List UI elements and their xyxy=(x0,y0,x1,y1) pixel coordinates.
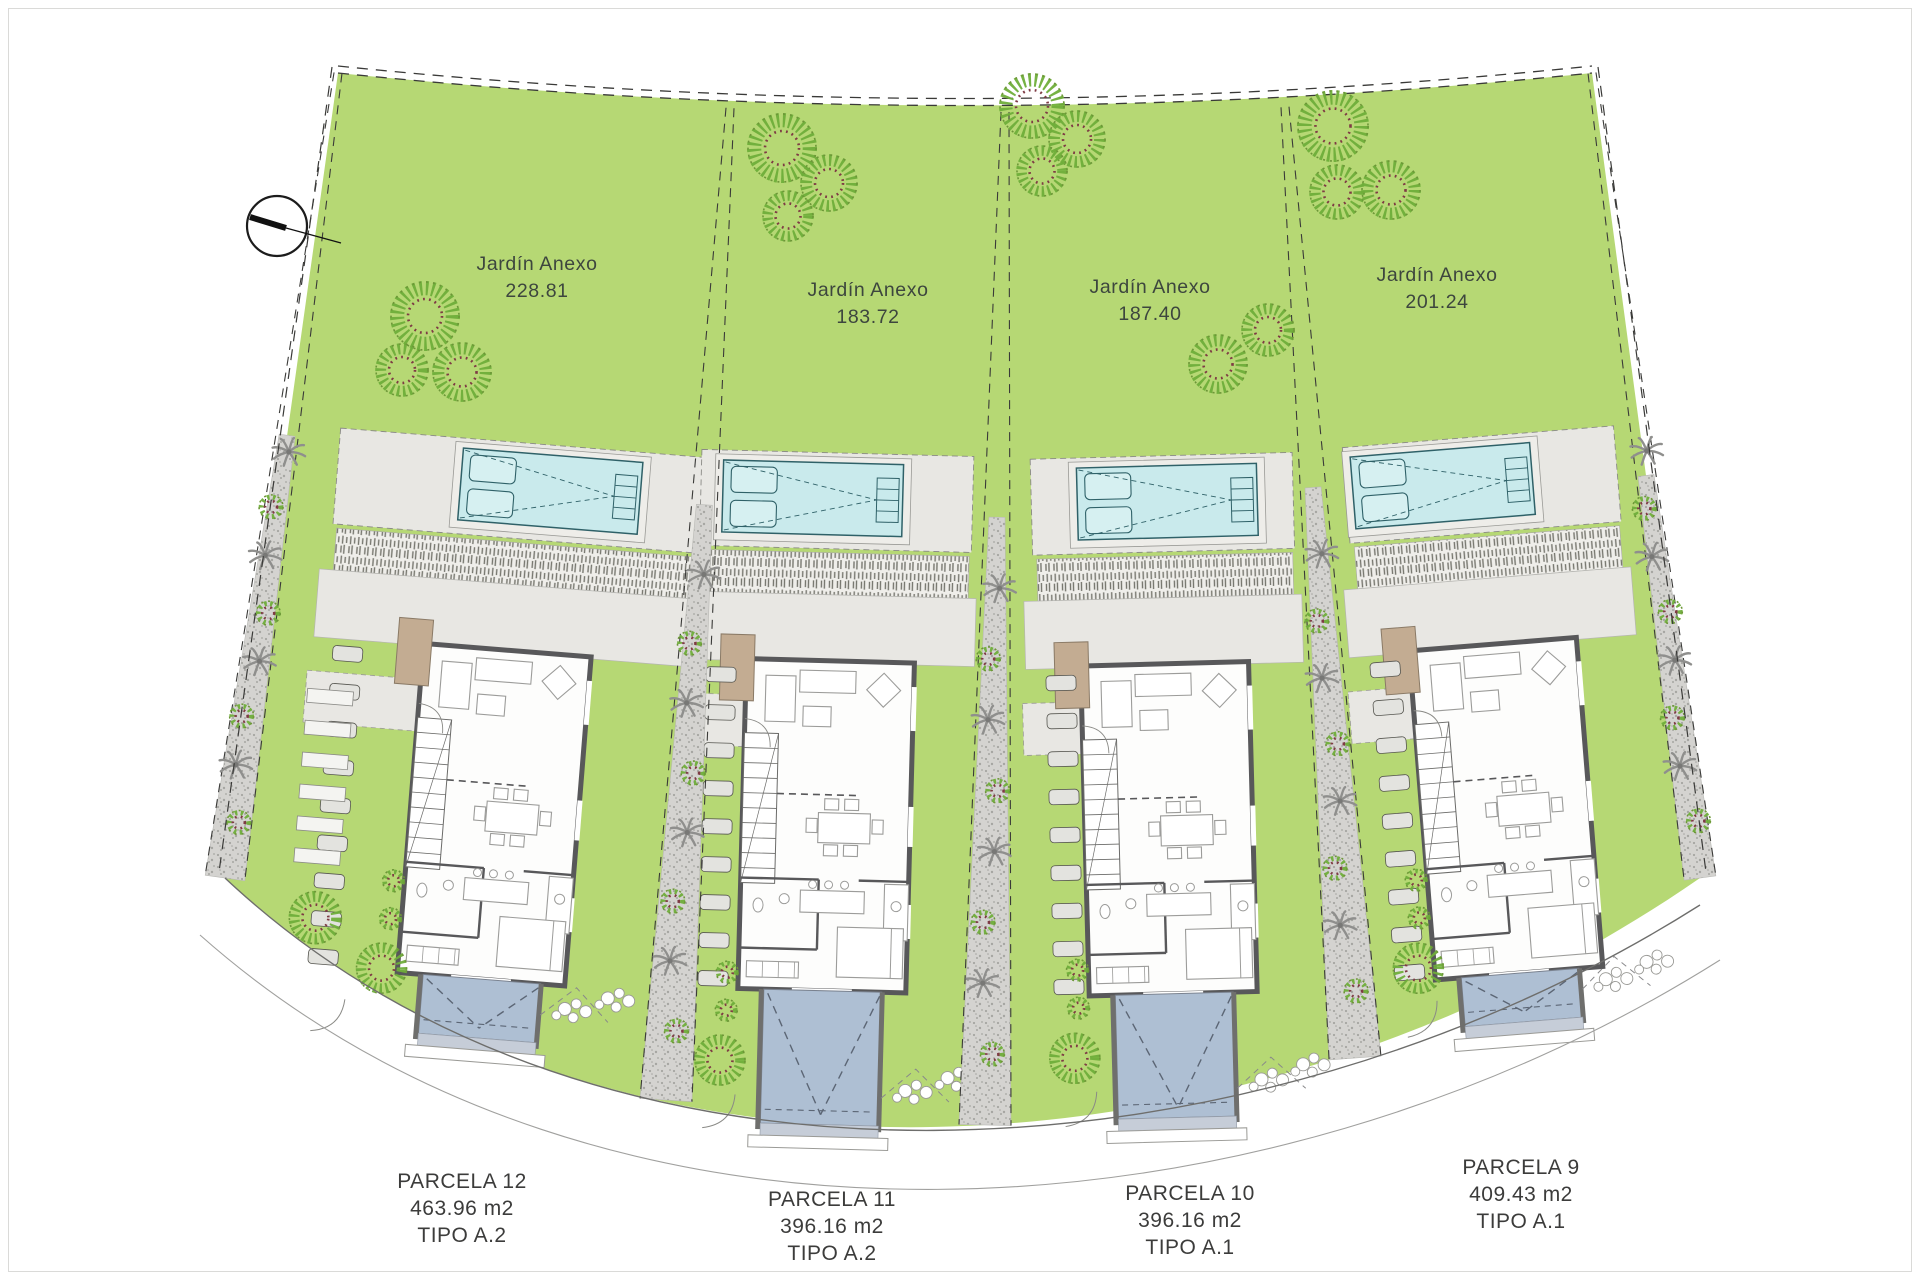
pool-lounger xyxy=(1085,507,1132,534)
stepping-stone xyxy=(700,894,730,910)
stepping-stone xyxy=(1376,736,1407,753)
driveway xyxy=(418,974,540,1042)
parcel-tipo: TIPO A.1 xyxy=(1145,1236,1234,1259)
parcel-label-12: PARCELA 12463.96 m2TIPO A.2 xyxy=(397,1170,527,1247)
pool-lounger xyxy=(731,466,778,493)
parcel-name: PARCELA 9 xyxy=(1462,1156,1579,1179)
garden-label-area: 228.81 xyxy=(505,280,568,302)
driveway xyxy=(760,989,881,1126)
stepping-stone xyxy=(1051,865,1081,881)
stepping-stone xyxy=(699,932,729,948)
pebble-cluster xyxy=(1633,949,1674,976)
parcel-name: PARCELA 11 xyxy=(768,1188,896,1211)
parcel-label-11: PARCELA 11396.16 m2TIPO A.2 xyxy=(768,1188,896,1265)
stepping-stone xyxy=(1047,713,1077,729)
gate-arc xyxy=(310,997,345,1033)
garden-label-area: 183.72 xyxy=(836,306,899,328)
stepping-stone xyxy=(1050,827,1080,843)
pool-lounger xyxy=(730,500,777,527)
parcel-tipo: TIPO A.1 xyxy=(1476,1210,1565,1233)
parcel-area: 396.16 m2 xyxy=(780,1215,884,1238)
parcel-area: 396.16 m2 xyxy=(1138,1209,1242,1232)
garden-label-area: 201.24 xyxy=(1405,291,1468,313)
stepping-stone xyxy=(1046,675,1076,691)
stepping-stone xyxy=(332,645,363,662)
pool-lounger xyxy=(1085,473,1132,500)
stepping-stone xyxy=(1048,751,1078,767)
stepping-stone xyxy=(317,835,348,852)
garden-label-title: Jardín Anexo xyxy=(476,253,597,275)
parcel-tipo: TIPO A.2 xyxy=(787,1242,876,1265)
parcel-tipo: TIPO A.2 xyxy=(417,1224,506,1247)
stepping-stone xyxy=(1373,699,1404,716)
stepping-stone xyxy=(701,856,731,872)
entrance-planter xyxy=(394,617,433,686)
garden-label-title: Jardín Anexo xyxy=(1376,264,1497,286)
stepping-stone xyxy=(705,705,735,721)
parcel-area: 463.96 m2 xyxy=(410,1197,514,1220)
stepping-stone xyxy=(1049,789,1079,805)
garden-label-area: 187.40 xyxy=(1118,303,1181,325)
stepping-stone xyxy=(1053,941,1083,957)
stepping-stone xyxy=(703,781,733,797)
garden-label-title: Jardín Anexo xyxy=(807,279,928,301)
site-plan-page: Jardín Anexo228.81Jardín Anexo183.72Jard… xyxy=(0,0,1920,1280)
pebble-cluster xyxy=(1592,966,1633,993)
garden-label-title: Jardín Anexo xyxy=(1089,276,1210,298)
driveway xyxy=(1461,968,1583,1026)
parcel-label-9: PARCELA 9409.43 m2TIPO A.1 xyxy=(1462,1156,1579,1233)
stepping-stone xyxy=(1391,926,1422,943)
parcel-name: PARCELA 12 xyxy=(397,1170,527,1193)
stepping-stone xyxy=(1052,903,1082,919)
stepping-stone xyxy=(314,872,345,889)
stepping-stone xyxy=(1370,661,1401,678)
timber-deck xyxy=(1037,552,1294,601)
stepping-stone xyxy=(1385,850,1416,867)
parcel-name: PARCELA 10 xyxy=(1125,1182,1255,1205)
stepping-stone xyxy=(1388,888,1419,905)
stepping-stone xyxy=(1382,812,1413,829)
parcel-label-10: PARCELA 10396.16 m2TIPO A.1 xyxy=(1125,1182,1255,1259)
stepping-stone xyxy=(704,743,734,759)
parcel-area: 409.43 m2 xyxy=(1469,1183,1573,1206)
entrance-planter xyxy=(1381,626,1420,695)
stepping-stone xyxy=(702,819,732,835)
timber-deck xyxy=(702,549,969,598)
site-plan-svg: Jardín Anexo228.81Jardín Anexo183.72Jard… xyxy=(0,0,1920,1280)
stepping-stone xyxy=(1379,774,1410,791)
